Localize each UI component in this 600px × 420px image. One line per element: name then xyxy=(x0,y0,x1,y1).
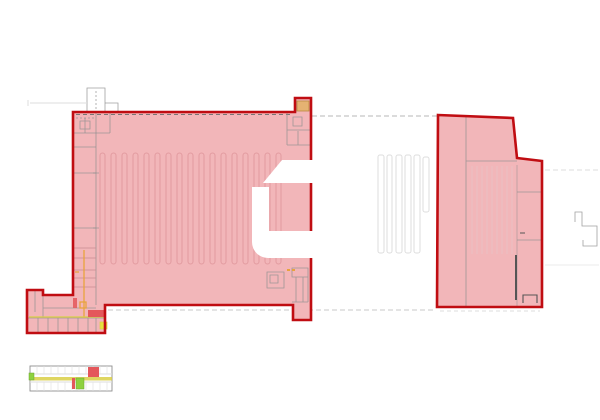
entrance-canopy xyxy=(28,88,118,112)
dock-stripe xyxy=(396,155,402,253)
dock-stripe xyxy=(414,155,420,253)
mini-plan-green-unit xyxy=(76,378,84,389)
loading-dock-stripes xyxy=(378,155,429,253)
mini-plan-green-block-left xyxy=(29,373,34,380)
dock-stripe xyxy=(405,155,411,253)
dock-stripe xyxy=(423,157,429,212)
dock-stripe xyxy=(387,155,392,253)
canopy-step-line xyxy=(105,103,118,112)
canopy-approach-line xyxy=(28,100,87,106)
floor-plan-canvas xyxy=(0,0,600,420)
mini-plan-corridor-highlight xyxy=(30,377,112,381)
mini-overview-plan xyxy=(29,366,112,391)
dock-stripe xyxy=(378,155,384,253)
tan-service-block xyxy=(297,101,309,111)
orange-tick xyxy=(292,269,295,271)
orange-tick xyxy=(287,269,290,271)
red-service-strip xyxy=(73,298,77,308)
right-unit-highlight-area[interactable] xyxy=(437,115,542,307)
mini-plan-red-unit xyxy=(88,367,99,377)
mini-plan-red-strip xyxy=(72,378,75,389)
outbuilding-outline xyxy=(575,212,597,246)
floor-plan-drawing xyxy=(0,0,600,420)
red-service-block xyxy=(88,310,105,317)
